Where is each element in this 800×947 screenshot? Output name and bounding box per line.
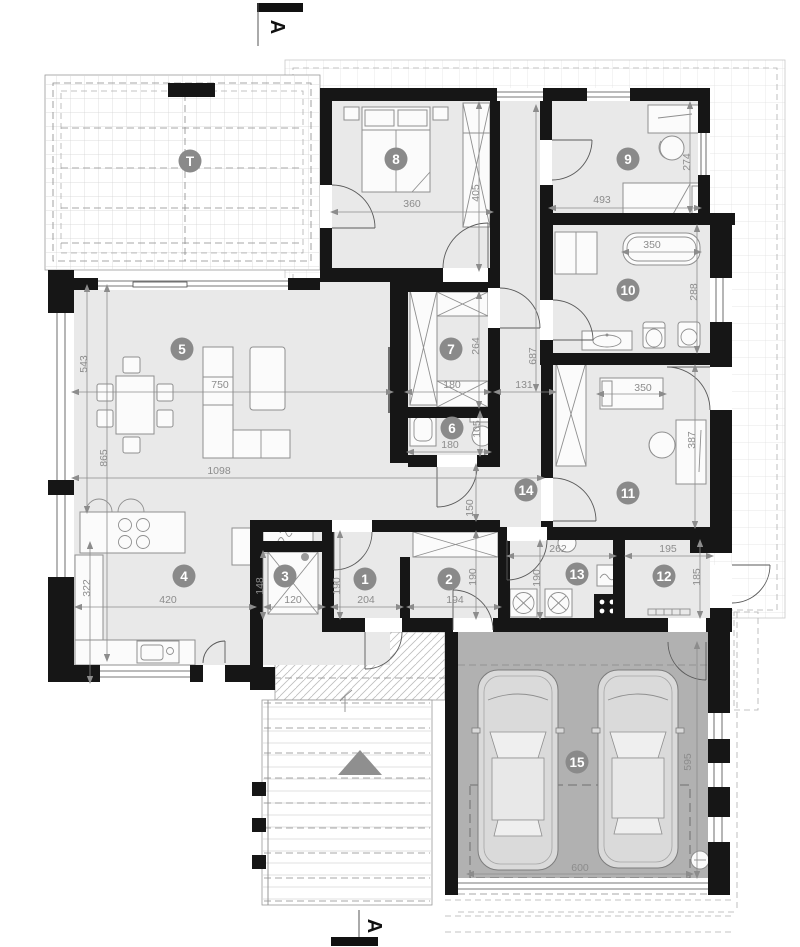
section-marker-bottom: A xyxy=(331,910,385,946)
dim-322: 322 xyxy=(81,579,93,597)
desk xyxy=(648,105,700,133)
single-bed xyxy=(623,183,707,218)
dim-185: 185 xyxy=(691,568,703,586)
room-badge-10: 10 xyxy=(617,279,640,302)
svg-text:A: A xyxy=(266,20,288,34)
room-badge-6: 6 xyxy=(441,417,464,440)
window xyxy=(48,313,74,480)
room-badge-14: 14 xyxy=(515,479,538,502)
svg-text:11: 11 xyxy=(621,486,636,501)
dim-190a: 190 xyxy=(331,577,343,595)
dim-120: 120 xyxy=(284,594,302,606)
desk xyxy=(676,420,706,484)
window xyxy=(708,763,730,787)
dim-543: 543 xyxy=(78,355,90,373)
dim-131: 131 xyxy=(515,379,533,391)
dim-387: 387 xyxy=(686,431,698,449)
svg-text:12: 12 xyxy=(656,569,671,584)
dim-493: 493 xyxy=(593,194,611,206)
svg-text:1: 1 xyxy=(361,572,369,587)
post xyxy=(252,782,266,796)
dim-750: 750 xyxy=(211,379,229,391)
post xyxy=(252,855,266,869)
svg-text:9: 9 xyxy=(624,152,632,167)
dim-195: 195 xyxy=(659,543,677,555)
dim-360: 360 xyxy=(403,198,421,210)
svg-text:6: 6 xyxy=(448,421,456,436)
svg-text:3: 3 xyxy=(281,569,289,584)
window xyxy=(710,278,732,322)
room-badge-2: 2 xyxy=(438,568,461,591)
svg-text:7: 7 xyxy=(447,342,455,357)
room-badge-15: 15 xyxy=(566,751,589,774)
dim-405: 405 xyxy=(470,184,482,202)
room-badge-5: 5 xyxy=(171,338,194,361)
dim-180b: 180 xyxy=(441,439,459,451)
svg-text:4: 4 xyxy=(180,569,188,584)
corridor-floor xyxy=(500,95,540,283)
room-badge-1: 1 xyxy=(354,568,377,591)
svg-text:14: 14 xyxy=(518,483,534,498)
window xyxy=(708,713,730,739)
terrace-badge: T xyxy=(179,150,202,173)
svg-text:T: T xyxy=(186,154,195,169)
washbasin xyxy=(582,331,632,350)
dim-288: 288 xyxy=(688,283,700,301)
dim-595: 595 xyxy=(682,753,694,771)
car xyxy=(472,670,564,870)
dim-264: 264 xyxy=(470,337,482,355)
window xyxy=(698,133,710,175)
chair xyxy=(649,432,675,458)
terrace-left xyxy=(45,75,320,270)
wardrobe xyxy=(463,103,490,227)
dim-350-tub: 350 xyxy=(643,239,661,251)
room-badge-7: 7 xyxy=(440,338,463,361)
dim-1098: 1098 xyxy=(207,465,231,477)
room-badge-3: 3 xyxy=(274,565,297,588)
svg-text:13: 13 xyxy=(569,567,585,582)
dim-600: 600 xyxy=(571,862,589,874)
single-bed xyxy=(600,378,663,409)
dim-420: 420 xyxy=(159,594,177,606)
window xyxy=(708,817,730,842)
svg-text:15: 15 xyxy=(569,755,585,770)
door-landing xyxy=(734,612,758,710)
dim-105: 105 xyxy=(471,420,483,438)
dim-190b: 190 xyxy=(467,568,479,586)
window xyxy=(48,495,74,577)
svg-text:8: 8 xyxy=(392,152,400,167)
svg-text:10: 10 xyxy=(620,283,635,298)
dim-194: 194 xyxy=(446,594,464,606)
dim-204: 204 xyxy=(357,594,375,606)
room-badge-12: 12 xyxy=(653,565,676,588)
dim-148: 148 xyxy=(254,577,266,595)
room-badge-8: 8 xyxy=(385,148,408,171)
wardrobe xyxy=(413,532,498,557)
bathtub xyxy=(623,233,700,265)
dim-274: 274 xyxy=(681,153,693,171)
dryer xyxy=(545,589,572,617)
svg-text:5: 5 xyxy=(178,342,186,357)
svg-text:2: 2 xyxy=(445,572,453,587)
kitchen-sink xyxy=(137,641,179,663)
svg-text:A: A xyxy=(363,919,385,933)
room-badge-4: 4 xyxy=(173,565,196,588)
dim-150: 150 xyxy=(464,499,476,517)
dim-865: 865 xyxy=(98,449,110,467)
armchair xyxy=(250,347,285,410)
dim-190c: 190 xyxy=(531,569,543,587)
bath-cabinet xyxy=(555,232,597,274)
dim-350-bed: 350 xyxy=(634,382,652,394)
dim-687: 687 xyxy=(527,347,539,365)
dim-262: 262 xyxy=(549,543,567,555)
window xyxy=(497,88,543,101)
wardrobe xyxy=(556,362,586,466)
window xyxy=(100,666,190,682)
room-badge-13: 13 xyxy=(566,563,589,586)
car xyxy=(592,670,684,868)
washing-machine xyxy=(510,589,537,617)
garage-door xyxy=(458,878,708,895)
floor-plan: 360 405 493 274 350 288 543 865 750 1098… xyxy=(0,0,800,947)
dim-180a: 180 xyxy=(443,379,461,391)
sliding-glass-door xyxy=(98,278,288,290)
room-badge-11: 11 xyxy=(617,482,640,505)
section-marker-top: A xyxy=(257,3,303,46)
room-badge-9: 9 xyxy=(617,148,640,171)
window xyxy=(587,88,630,101)
post xyxy=(252,818,266,832)
toilet xyxy=(643,322,665,348)
